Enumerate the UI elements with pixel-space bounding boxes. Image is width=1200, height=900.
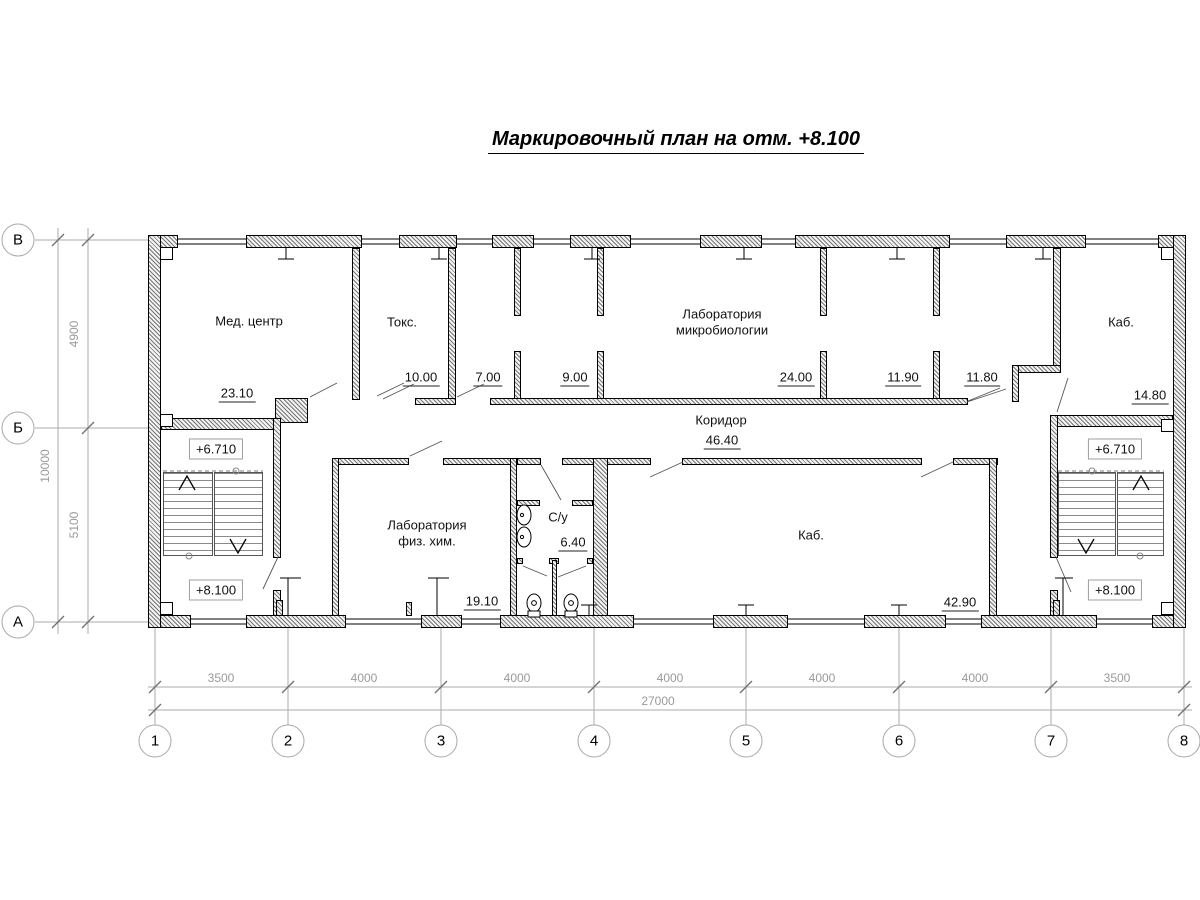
room-area-kab-upper: 14.80 <box>1132 388 1169 403</box>
axis-number: 6 <box>895 733 903 750</box>
elevation-mark: +8.100 <box>189 580 243 601</box>
room-label-corridor: Коридор <box>695 413 746 428</box>
room-area-toks: 10.00 <box>403 370 440 385</box>
room-area-1190: 11.90 <box>885 370 921 385</box>
room-label-su: С/у <box>548 510 568 525</box>
elevation-mark: +8.100 <box>1088 580 1142 601</box>
axis-letter: Б <box>13 420 23 437</box>
dimension-label: 4000 <box>809 671 836 685</box>
axis-number: 3 <box>437 733 445 750</box>
room-label-kab-upper: Каб. <box>1108 315 1134 330</box>
axis-letter: В <box>13 232 23 249</box>
axis-number: 2 <box>284 733 292 750</box>
room-area-med-center: 23.10 <box>219 386 256 401</box>
dimension-label: 4000 <box>351 671 378 685</box>
room-area-lab-micro: 24.00 <box>778 370 815 385</box>
room-area-kab-main: 42.90 <box>942 595 979 610</box>
room-label-toks: Токс. <box>387 315 417 330</box>
room-area-7: 7.00 <box>473 370 502 385</box>
axis-number: 1 <box>151 733 159 750</box>
room-label-med-center: Мед. центр <box>215 314 283 329</box>
dimension-label: 3500 <box>208 671 235 685</box>
room-area-corridor: 46.40 <box>704 433 741 448</box>
room-label-lab-micro-1: Лаборатория <box>682 307 761 322</box>
drawing-title: Маркировочный план на отм. +8.100 <box>488 128 864 154</box>
room-label-kab-main: Каб. <box>798 528 824 543</box>
axis-number: 7 <box>1047 733 1055 750</box>
dimension-total-vertical: 10000 <box>38 449 52 482</box>
dimension-total: 27000 <box>641 694 674 708</box>
room-area-su: 6.40 <box>558 535 587 550</box>
dimension-label: 4000 <box>657 671 684 685</box>
dimension-label-vertical: 5100 <box>67 512 81 539</box>
room-area-lab-fiz: 19.10 <box>464 594 501 609</box>
dimension-label-vertical: 4900 <box>67 321 81 348</box>
floor-plan-canvas: Маркировочный план на отм. +8.100 Мед. ц… <box>0 0 1200 900</box>
elevation-mark: +6.710 <box>1088 439 1142 460</box>
room-label-lab-fiz-2: физ. хим. <box>398 534 455 549</box>
room-area-1180: 11.80 <box>964 370 1000 385</box>
dimension-label: 4000 <box>504 671 531 685</box>
dimension-label: 3500 <box>1104 671 1131 685</box>
axis-number: 4 <box>590 733 598 750</box>
axis-letter: А <box>13 614 23 631</box>
axis-number: 8 <box>1180 733 1188 750</box>
elevation-mark: +6.710 <box>189 439 243 460</box>
room-label-lab-fiz-1: Лаборатория <box>387 518 466 533</box>
room-label-lab-micro-2: микробиологии <box>676 323 768 338</box>
room-area-9: 9.00 <box>560 370 589 385</box>
axis-number: 5 <box>742 733 750 750</box>
dimension-label: 4000 <box>962 671 989 685</box>
